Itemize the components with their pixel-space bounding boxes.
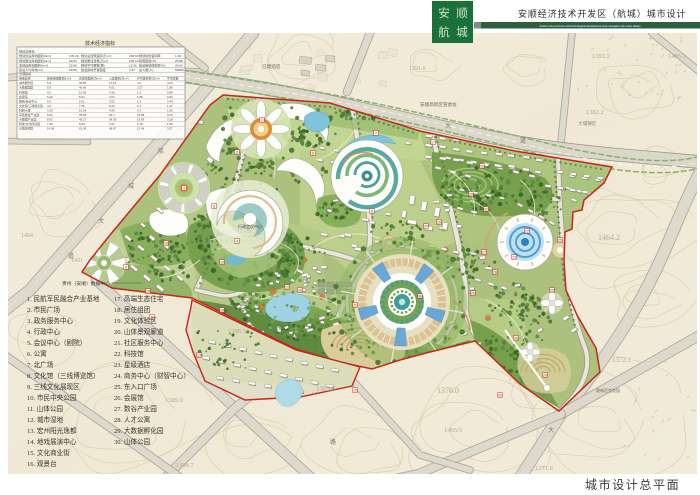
svg-text:总人数(人): 总人数(人) [139,67,153,72]
svg-text:9: 9 [125,266,127,270]
svg-text:30: 30 [418,295,422,299]
svg-text:公建面积(万m²): 公建面积(万m²) [109,76,129,81]
svg-text:28. 人才公寓: 28. 人才公寓 [114,415,151,424]
svg-text:3. 政务服务中心: 3. 政务服务中心 [27,316,74,325]
svg-text:大: 大 [548,426,554,434]
svg-text:行政会议中心: 行政会议中心 [238,223,262,229]
svg-text:安顺经济技术开发区（航城）城市设计: 安顺经济技术开发区（航城）城市设计 [518,8,686,19]
svg-text:4.37: 4.37 [109,122,115,126]
svg-text:12.06: 12.06 [79,90,87,94]
svg-text:高端住宅区: 高端住宅区 [19,126,34,131]
svg-text:25.98: 25.98 [175,59,183,63]
svg-text:1389.9: 1389.9 [165,397,183,404]
svg-text:26.7: 26.7 [109,113,115,117]
svg-text:1391.6: 1391.6 [409,66,426,72]
svg-text:30: 30 [498,394,502,398]
svg-text:平均容积率(万m²): 平均容积率(万m²) [137,76,160,81]
svg-text:顺: 顺 [456,7,468,20]
svg-text:3.18: 3.18 [167,118,173,122]
svg-text:6.9: 6.9 [47,99,51,103]
svg-text:7.46: 7.46 [47,122,53,126]
svg-text:21. 社区服务中心: 21. 社区服务中心 [114,338,164,347]
svg-text:4: 4 [236,240,238,244]
svg-text:1.88: 1.88 [137,95,143,99]
svg-text:规划总建筑面积(万m²): 规划总建筑面积(万m²) [81,53,111,58]
svg-text:5: 5 [371,210,373,214]
svg-text:25: 25 [558,239,562,243]
svg-text:8: 8 [213,205,215,209]
svg-text:12.08: 12.08 [137,113,145,117]
svg-text:技术经济指标: 技术经济指标 [85,40,115,47]
svg-text:规划建设用地面积(hm²): 规划建设用地面积(hm²) [19,53,51,58]
svg-text:15: 15 [146,290,150,294]
svg-text:5.09: 5.09 [79,122,85,126]
svg-text:道: 道 [520,137,526,145]
svg-text:15: 15 [353,389,357,393]
svg-text:27.14: 27.14 [109,81,117,85]
svg-text:3.27: 3.27 [167,127,173,131]
svg-text:1.3: 1.3 [137,90,141,94]
svg-text:13. 宏州阳光逸都: 13. 宏州阳光逸都 [27,426,77,435]
svg-text:总建筑面积(万m²): 总建筑面积(万m²) [79,76,102,81]
svg-text:29. 大数据孵化园: 29. 大数据孵化园 [114,426,164,435]
svg-text:28: 28 [493,271,497,275]
svg-text:5.9: 5.9 [47,86,51,90]
svg-text:1.18: 1.18 [137,122,143,126]
svg-text:12.46: 12.46 [129,63,137,67]
svg-text:规划综合容积率: 规划综合容积率 [139,53,161,58]
svg-text:59.85: 59.85 [69,68,77,72]
svg-text:1404: 1404 [21,233,33,239]
svg-text:城: 城 [128,183,134,190]
svg-text:道: 道 [68,252,74,260]
svg-text:27: 27 [482,251,486,255]
svg-text:14: 14 [220,309,224,313]
svg-text:1376.0: 1376.0 [437,386,459,395]
svg-text:城市设计总平面: 城市设计总平面 [585,477,680,492]
svg-text:1393.2: 1393.2 [592,53,610,60]
svg-text:1.37: 1.37 [167,104,173,108]
svg-text:6.62: 6.62 [47,113,53,117]
svg-text:6. 公寓: 6. 公寓 [27,349,47,358]
svg-text:1464.2: 1464.2 [598,233,620,242]
svg-text:50000: 50000 [175,68,184,72]
svg-text:4.23: 4.23 [167,81,173,85]
svg-text:1372.1: 1372.1 [612,356,632,364]
svg-text:22. 科技馆: 22. 科技馆 [114,349,144,358]
svg-text:1.9: 1.9 [137,99,141,103]
svg-text:5.94: 5.94 [79,95,85,99]
svg-text:7. 北广场: 7. 北广场 [27,360,54,369]
svg-text:航: 航 [158,147,164,155]
svg-text:99.54: 99.54 [69,59,77,63]
svg-text:2.27: 2.27 [137,86,143,90]
svg-text:1398.7: 1398.7 [176,462,195,469]
svg-text:13: 13 [197,354,201,358]
svg-text:大城镇区: 大城镇区 [578,120,597,127]
svg-text:22: 22 [525,230,529,234]
svg-text:24: 24 [424,225,428,229]
svg-text:39.92: 39.92 [79,113,87,117]
svg-text:30. 山体公园: 30. 山体公园 [114,437,151,446]
svg-text:大数据产业园: 大数据产业园 [19,117,36,122]
svg-text:45.27: 45.27 [79,118,87,122]
svg-text:平均层数: 平均层数 [167,76,179,81]
svg-text:6.52: 6.52 [109,86,115,90]
svg-text:18: 18 [298,289,302,293]
svg-text:13.69: 13.69 [137,118,145,122]
svg-text:5.01: 5.01 [79,99,85,103]
svg-text:1.06: 1.06 [167,122,173,126]
svg-text:1.95: 1.95 [167,108,173,112]
svg-text:34.39: 34.39 [109,118,117,122]
svg-text:安: 安 [438,6,450,20]
svg-text:研发/文化创意园: 研发/文化创意园 [19,121,40,126]
svg-text:29: 29 [471,292,475,296]
svg-text:28: 28 [514,337,518,341]
svg-text:大数据园区: 大数据园区 [19,85,34,90]
svg-text:城市服务区: 城市服务区 [19,80,34,85]
svg-text:大: 大 [98,217,104,225]
svg-text:6: 6 [312,152,314,156]
svg-text:0.44: 0.44 [167,99,173,103]
svg-text:3.19: 3.19 [47,108,53,112]
svg-text:7.46: 7.46 [79,104,85,108]
svg-text:2.47: 2.47 [129,68,135,72]
svg-text:3: 3 [183,187,185,191]
svg-text:12.46: 12.46 [137,127,145,131]
svg-text:规划总用地: 规划总用地 [19,49,34,54]
svg-text:建筑用地面积(hm²): 建筑用地面积(hm²) [47,76,71,81]
svg-text:科技园: 科技园 [19,89,28,94]
svg-text:6.46: 6.46 [47,95,53,99]
svg-text:23: 23 [550,289,554,293]
svg-text:1.39: 1.39 [175,54,181,58]
svg-text:19. 文化体验区: 19. 文化体验区 [114,316,157,325]
svg-text:27. 数谷产业园: 27. 数谷产业园 [114,404,157,413]
svg-text:11. 山体公园: 11. 山体公园 [27,404,63,413]
svg-text:已建酒店: 已建酒店 [262,63,281,70]
svg-text:26. 会展馆: 26. 会展馆 [114,393,144,402]
svg-text:5. 会议中心（剧院）: 5. 会议中心（剧院） [27,338,86,347]
svg-text:135.39: 135.39 [69,54,79,58]
svg-text:4.2: 4.2 [47,104,51,108]
svg-text:0.96: 0.96 [167,95,173,99]
svg-text:军民融合产业园: 军民融合产业园 [19,112,39,117]
svg-text:17: 17 [431,141,435,145]
svg-text:规划平均层数(层): 规划平均层数(层) [81,62,105,67]
svg-text:航: 航 [438,25,450,39]
svg-text:2.1: 2.1 [137,104,141,108]
svg-text:20: 20 [469,193,473,197]
svg-text:Anshun city economic and techn: Anshun city economic and technological d… [540,24,641,28]
svg-text:24. 商务中心（财智中心）: 24. 商务中心（财智中心） [114,371,190,380]
svg-text:19: 19 [480,165,484,169]
svg-text:20. 山体景观廊道: 20. 山体景观廊道 [114,327,164,336]
svg-text:238.66: 238.66 [129,54,139,58]
svg-text:10. 市民中央公园: 10. 市民中央公园 [27,393,77,402]
svg-text:20: 20 [353,304,357,308]
svg-text:18. 居住组团: 18. 居住组团 [114,305,151,314]
svg-text:1. 民航军民融合产业基地: 1. 民航军民融合产业基地 [27,294,100,303]
svg-text:1398.5: 1398.5 [228,328,246,335]
svg-text:2. 市民广场: 2. 市民广场 [27,305,60,314]
svg-text:4.54: 4.54 [109,95,115,99]
svg-text:9. 三线文化展现区: 9. 三线文化展现区 [27,382,80,391]
svg-text:17. 高端生态住宅: 17. 高端生态住宅 [114,294,164,303]
svg-text:6.23: 6.23 [109,104,115,108]
svg-text:14. 地戏展演中心: 14. 地戏展演中心 [27,437,77,446]
svg-text:12: 12 [285,286,289,290]
svg-text:建设用地开发强度: 建设用地开发强度 [81,67,106,72]
svg-text:贵州（安顺）数据中心: 贵州（安顺）数据中心 [62,280,110,287]
svg-text:16: 16 [164,242,168,246]
svg-text:建筑密度(%): 建筑密度(%) [139,58,156,63]
svg-text:40.66: 40.66 [79,86,87,90]
svg-text:16. 观景台: 16. 观景台 [27,459,57,468]
svg-text:建设用地绿地率(%): 建设用地绿地率(%) [139,62,165,67]
svg-text:21: 21 [484,208,488,212]
svg-text:4. 行政中心: 4. 行政中心 [27,327,60,336]
svg-text:15. 文化商业街: 15. 文化商业街 [27,448,70,457]
svg-text:1383.6: 1383.6 [316,385,336,393]
svg-text:用地名称: 用地名称 [19,76,31,81]
svg-text:29: 29 [543,374,547,378]
svg-text:规划居住建筑(万m²): 规划居住建筑(万m²) [81,58,108,63]
svg-text:6.9: 6.9 [47,81,51,85]
svg-text:会展馆: 会展馆 [19,94,28,99]
svg-text:30.00: 30.00 [175,63,183,67]
svg-text:25. 东入口广场: 25. 东入口广场 [114,382,157,391]
svg-text:26: 26 [437,221,441,225]
svg-text:奥林匹克花园: 奥林匹克花园 [596,387,620,393]
svg-text:大: 大 [445,122,451,130]
svg-text:城: 城 [456,26,468,39]
svg-text:4.16: 4.16 [109,90,115,94]
svg-text:35.85: 35.85 [69,63,77,67]
svg-text:8. 文化馆（三线博览馆）: 8. 文化馆（三线博览馆） [27,371,100,380]
svg-text:8.93: 8.93 [47,118,53,122]
svg-text:非建设用地面积(hm²): 非建设用地面积(hm²) [19,62,48,67]
svg-text:4.2: 4.2 [47,90,51,94]
svg-text:2: 2 [236,151,238,155]
svg-text:0.98: 0.98 [167,90,173,94]
svg-text:7: 7 [375,132,377,136]
svg-text:1371.6: 1371.6 [535,465,554,472]
svg-text:分项指标: 分项指标 [19,71,31,76]
svg-text:23. 星级酒店: 23. 星级酒店 [114,360,151,369]
svg-text:剧院/会议中心: 剧院/会议中心 [19,98,37,103]
svg-text:14.96: 14.96 [47,127,55,131]
svg-text:文化馆/三线博览馆: 文化馆/三线博览馆 [19,103,43,108]
svg-text:科研大楼: 科研大楼 [19,107,31,112]
svg-text:62.45: 62.45 [79,127,87,131]
svg-text:12. 城市湿地: 12. 城市湿地 [27,415,64,424]
svg-text:4.99: 4.99 [109,108,115,112]
svg-text:4.1: 4.1 [137,108,141,112]
svg-text:23: 23 [512,256,516,260]
svg-text:16.29: 16.29 [79,108,87,112]
svg-text:4.0: 4.0 [137,81,141,85]
svg-text:1465/3: 1465/3 [444,427,462,434]
svg-text:1: 1 [261,119,263,123]
svg-text:1485.1: 1485.1 [668,53,686,60]
svg-text:3.23: 3.23 [167,113,173,117]
svg-text:36.95: 36.95 [79,81,87,85]
svg-text:1382.2: 1382.2 [586,109,604,116]
svg-text:1.86: 1.86 [167,86,173,90]
svg-text:规划居住用地面积(hm²): 规划居住用地面积(hm²) [19,58,51,63]
svg-text:安顺高新区管委会: 安顺高新区管委会 [420,101,457,108]
svg-text:p65.16: p65.16 [129,59,139,63]
svg-text:10: 10 [220,261,224,265]
svg-text:2.62: 2.62 [109,99,115,103]
svg-text:路: 路 [330,438,336,446]
svg-text:49.87: 49.87 [109,127,117,131]
